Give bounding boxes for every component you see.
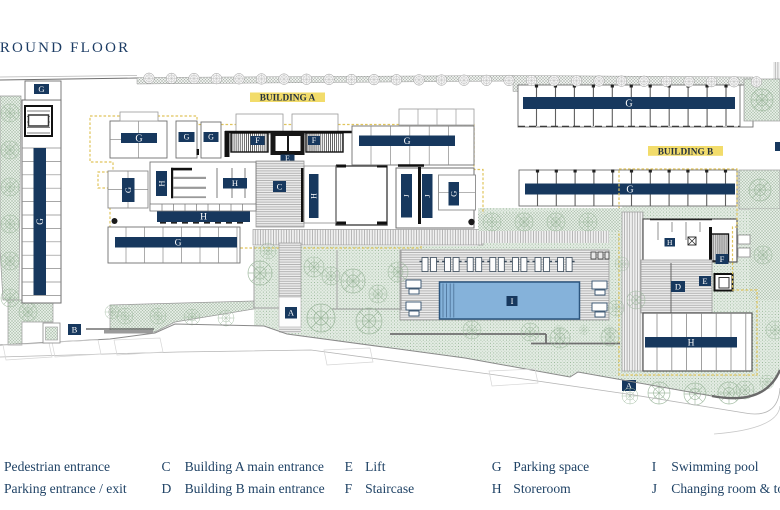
svg-text:G: G — [135, 133, 142, 144]
svg-text:I: I — [652, 459, 657, 474]
svg-text:G: G — [449, 191, 459, 197]
svg-text:Changing room & toilets: Changing room & toilets — [671, 481, 780, 496]
svg-text:G: G — [175, 238, 182, 248]
svg-text:G: G — [35, 218, 45, 225]
svg-text:G: G — [123, 187, 133, 193]
svg-text:G: G — [38, 84, 44, 94]
svg-text:H: H — [492, 481, 502, 496]
svg-text:C: C — [277, 181, 283, 191]
svg-text:Lift: Lift — [365, 459, 386, 474]
svg-text:G: G — [404, 137, 411, 147]
svg-text:BUILDING A: BUILDING A — [260, 94, 316, 104]
svg-text:F: F — [312, 136, 317, 145]
svg-text:G: G — [625, 98, 632, 109]
svg-text:J: J — [652, 481, 657, 496]
svg-text:Parking space: Parking space — [513, 459, 589, 474]
svg-text:Swimming pool: Swimming pool — [671, 459, 758, 474]
svg-text:Staircase: Staircase — [365, 481, 414, 496]
svg-text:E: E — [702, 276, 707, 286]
svg-text:F: F — [255, 136, 260, 145]
svg-text:F: F — [720, 254, 725, 264]
svg-text:D: D — [162, 481, 172, 496]
svg-text:H: H — [156, 180, 166, 186]
svg-text:F: F — [345, 481, 353, 496]
svg-text:G: G — [492, 459, 502, 474]
svg-text:H: H — [200, 213, 207, 223]
svg-text:A: A — [288, 308, 295, 318]
svg-text:Storeroom: Storeroom — [513, 481, 571, 496]
svg-text:Building B main entrance: Building B main entrance — [185, 481, 325, 496]
svg-text:G: G — [184, 133, 190, 142]
svg-text:H: H — [688, 338, 695, 348]
svg-text:Building A main entrance: Building A main entrance — [185, 459, 324, 474]
svg-text:H: H — [232, 178, 238, 188]
svg-text:G: G — [626, 184, 633, 195]
svg-text:J: J — [423, 194, 432, 197]
svg-text:Pedestrian entrance: Pedestrian entrance — [4, 459, 110, 474]
svg-text:E: E — [345, 459, 353, 474]
svg-text:GROUND FLOOR: GROUND FLOOR — [0, 40, 130, 56]
svg-text:H: H — [667, 238, 673, 247]
svg-text:D: D — [675, 281, 681, 291]
svg-text:B: B — [72, 324, 78, 334]
svg-text:H: H — [309, 193, 318, 199]
svg-text:G: G — [208, 133, 214, 142]
svg-text:I: I — [511, 296, 514, 306]
svg-text:J: J — [402, 194, 411, 197]
svg-text:Parking entrance / exit: Parking entrance / exit — [4, 481, 127, 496]
svg-text:C: C — [162, 459, 171, 474]
svg-text:BUILDING B: BUILDING B — [658, 147, 714, 157]
